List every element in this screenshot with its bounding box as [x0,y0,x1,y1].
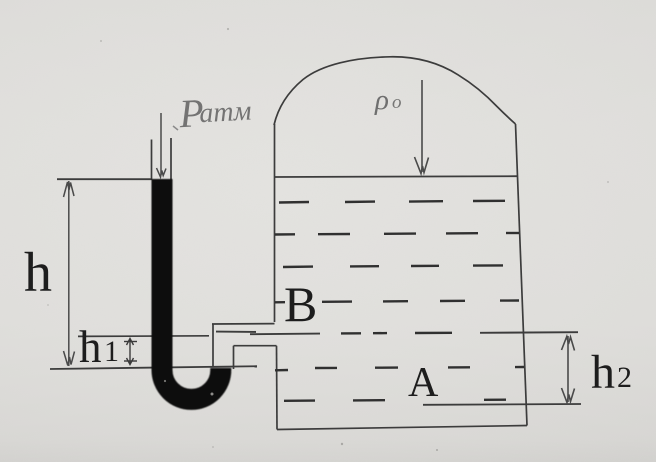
svg-text:2: 2 [617,361,632,394]
svg-text:B: B [284,276,317,332]
svg-text:1: 1 [104,335,119,368]
svg-text:h: h [79,322,102,372]
svg-text:o: o [392,92,402,113]
svg-text:A: A [408,360,439,406]
svg-text:h: h [591,346,615,399]
svg-text:h: h [24,242,52,304]
svg-text:ρ: ρ [374,84,389,116]
svg-text:атм: атм [199,96,253,130]
